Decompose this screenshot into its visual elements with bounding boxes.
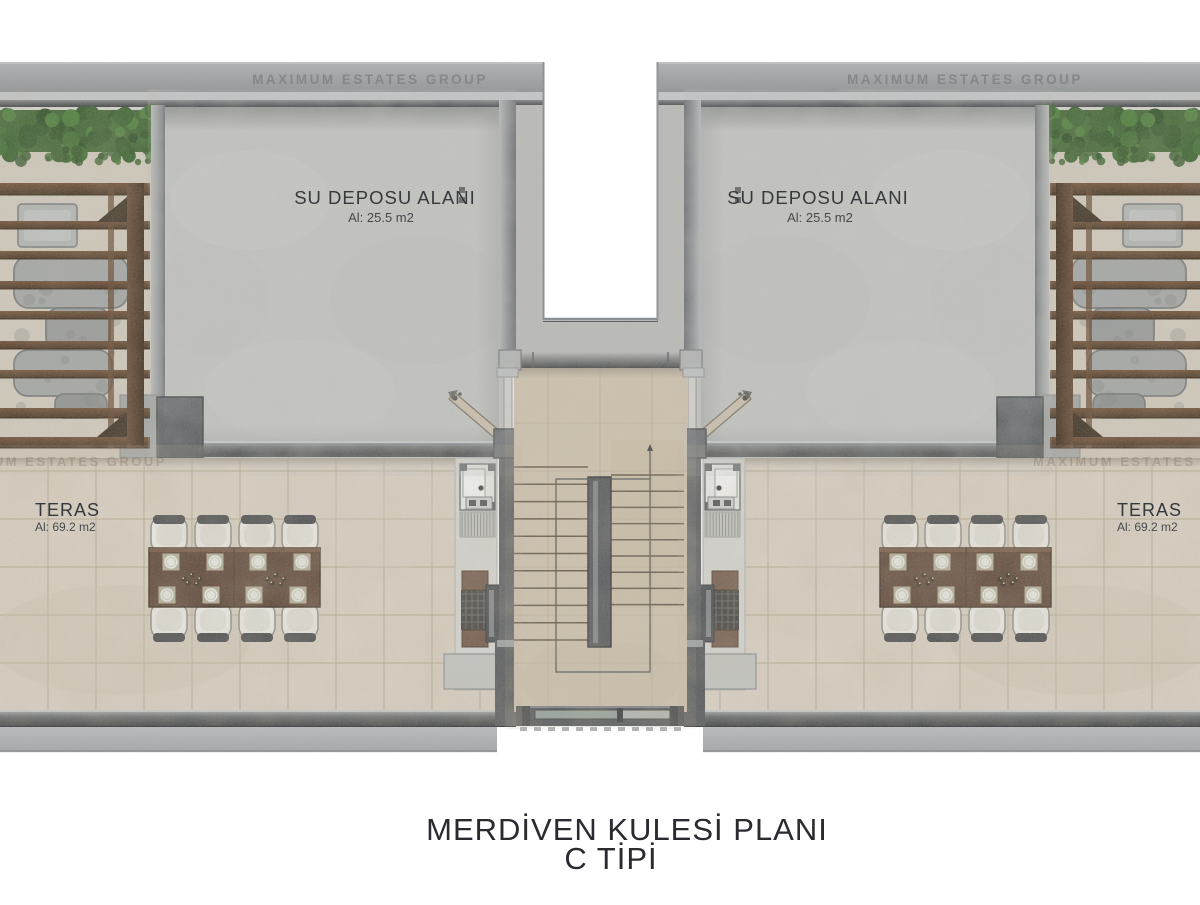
svg-text:MAXIMUM ESTATES GROUP: MAXIMUM ESTATES GROUP: [847, 72, 1083, 87]
svg-text:Al: 69.2 m2: Al: 69.2 m2: [35, 520, 96, 534]
svg-text:C TİPİ: C TİPİ: [564, 841, 657, 876]
svg-text:TERAS: TERAS: [1117, 500, 1182, 520]
svg-text:Al: 25.5 m2: Al: 25.5 m2: [348, 210, 414, 225]
svg-text:SU DEPOSU ALANI: SU DEPOSU ALANI: [727, 187, 909, 208]
svg-text:MAXIMUM ESTATES GROUP: MAXIMUM ESTATES GROUP: [252, 72, 488, 87]
svg-text:Al: 69.2 m2: Al: 69.2 m2: [1117, 520, 1178, 534]
svg-text:Al: 25.5 m2: Al: 25.5 m2: [787, 210, 853, 225]
svg-text:SU DEPOSU ALANI: SU DEPOSU ALANI: [294, 187, 476, 208]
svg-text:TERAS: TERAS: [35, 500, 100, 520]
svg-text:MAXIMUM ESTATES GROUP: MAXIMUM ESTATES GROUP: [0, 454, 167, 469]
svg-text:MAXIMUM ESTATES GROUP: MAXIMUM ESTATES GROUP: [1033, 454, 1200, 469]
